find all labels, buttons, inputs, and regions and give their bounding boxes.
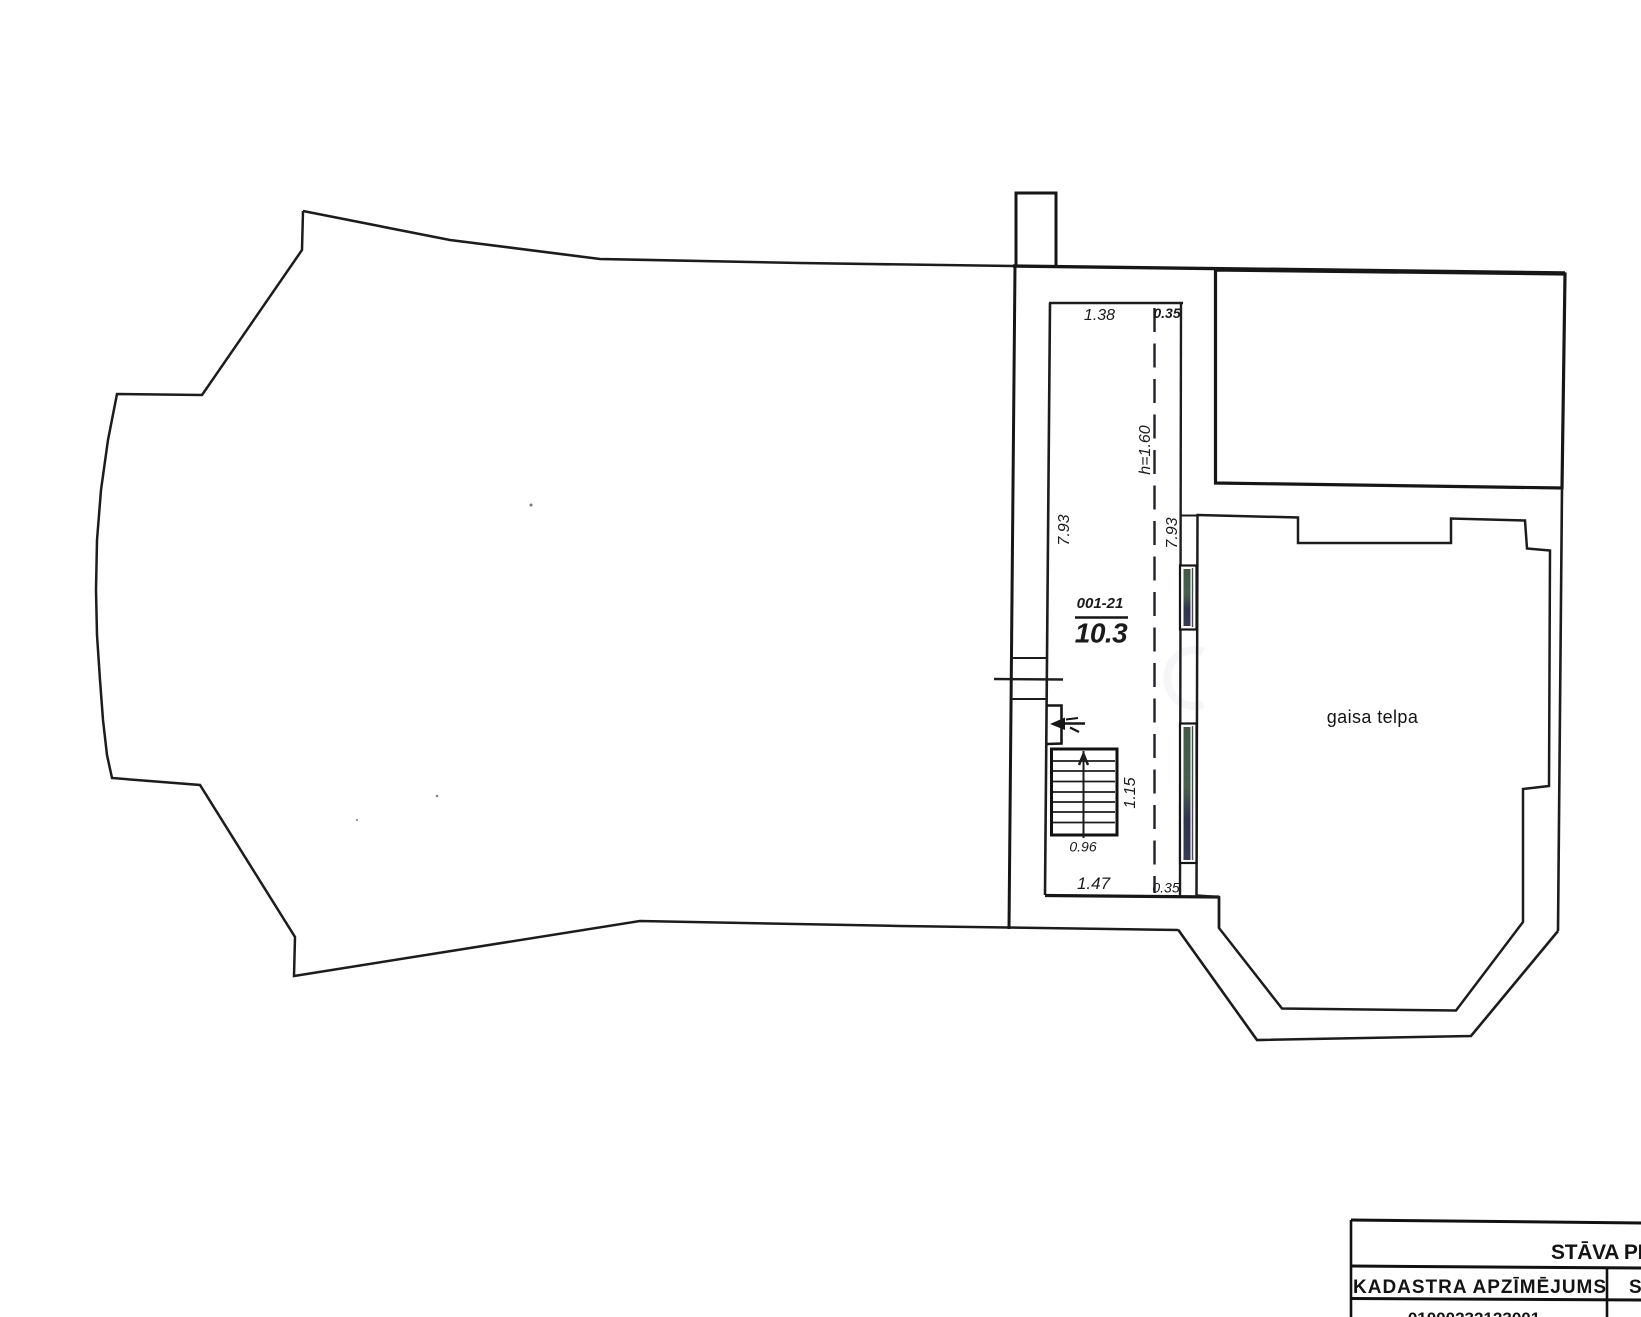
svg-text:KADASTRA APZĪMĒJUMS: KADASTRA APZĪMĒJUMS xyxy=(1353,1277,1607,1298)
svg-text:7.93: 7.93 xyxy=(1056,514,1073,545)
svg-text:10.3: 10.3 xyxy=(1075,618,1128,649)
svg-text:ST: ST xyxy=(1629,1277,1641,1298)
svg-text:01000232123001: 01000232123001 xyxy=(1408,1309,1540,1317)
svg-text:7.93: 7.93 xyxy=(1164,517,1181,548)
svg-text:0.35: 0.35 xyxy=(1153,305,1180,321)
svg-text:1.38: 1.38 xyxy=(1084,307,1115,324)
svg-text:001-21: 001-21 xyxy=(1077,595,1124,612)
svg-text:0.35: 0.35 xyxy=(1152,880,1179,896)
svg-text:0.96: 0.96 xyxy=(1069,839,1096,855)
svg-text:1.15: 1.15 xyxy=(1122,777,1139,808)
svg-text:1.47: 1.47 xyxy=(1077,874,1111,893)
svg-text:h=1.60: h=1.60 xyxy=(1137,425,1154,474)
svg-text:STĀVA PLĀNS: STĀVA PLĀNS xyxy=(1551,1241,1641,1264)
svg-text:gaisa telpa: gaisa telpa xyxy=(1327,707,1419,727)
